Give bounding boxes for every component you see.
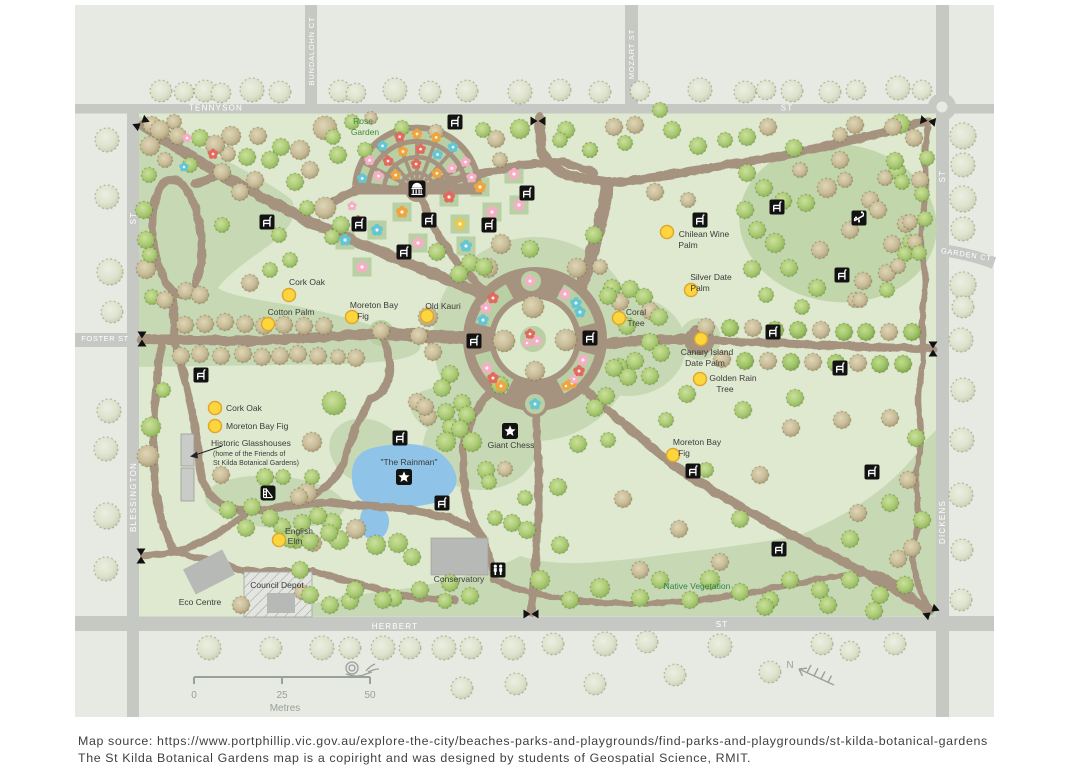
svg-text:Metres: Metres: [270, 703, 301, 714]
svg-text:Golden Rain: Golden Rain: [709, 373, 757, 383]
svg-text:(home of the Friends of: (home of the Friends of: [213, 451, 285, 458]
svg-text:Garden: Garden: [351, 127, 380, 137]
svg-text:N: N: [786, 660, 793, 671]
svg-text:Palm: Palm: [690, 283, 709, 293]
svg-text:Historic Glasshouses: Historic Glasshouses: [211, 438, 291, 448]
svg-text:ST: ST: [781, 104, 794, 113]
svg-text:ST: ST: [938, 170, 947, 183]
svg-text:Map source: https://www.portph: Map source: https://www.portphillip.vic.…: [78, 734, 988, 748]
svg-text:Council Depot: Council Depot: [250, 580, 304, 590]
svg-text:HERBERT: HERBERT: [372, 622, 418, 631]
svg-text:Giant Chess: Giant Chess: [488, 440, 535, 450]
svg-text:TENNYSON: TENNYSON: [189, 104, 243, 113]
svg-text:Silver Date: Silver Date: [690, 272, 732, 282]
svg-text:Eco Centre: Eco Centre: [179, 597, 222, 607]
svg-text:DICKENS: DICKENS: [938, 500, 947, 544]
svg-text:MOZART ST: MOZART ST: [627, 29, 636, 79]
svg-text:BUNDALOHN CT: BUNDALOHN CT: [307, 17, 316, 86]
svg-text:25: 25: [276, 690, 288, 701]
svg-text:St Kilda Botanical Gardens): St Kilda Botanical Gardens): [213, 460, 299, 467]
svg-text:0: 0: [191, 690, 197, 701]
svg-text:Moreton Bay: Moreton Bay: [350, 300, 399, 310]
svg-text:"The Rainman": "The Rainman": [380, 457, 437, 467]
svg-text:Conservatory: Conservatory: [434, 574, 485, 584]
svg-text:Tree: Tree: [716, 384, 733, 394]
svg-text:Coral: Coral: [626, 307, 646, 317]
svg-text:The St Kilda Botanical Gardens: The St Kilda Botanical Gardens map is a …: [78, 751, 751, 765]
svg-text:Canary Island: Canary Island: [681, 347, 734, 357]
svg-text:Moreton Bay Fig: Moreton Bay Fig: [226, 421, 289, 431]
svg-text:Fig: Fig: [357, 311, 369, 321]
svg-text:Date Palm: Date Palm: [685, 358, 725, 368]
svg-text:FOSTER ST: FOSTER ST: [81, 334, 129, 343]
svg-text:Old Kauri: Old Kauri: [425, 301, 461, 311]
svg-text:Elm: Elm: [288, 536, 303, 546]
svg-text:Cork Oak: Cork Oak: [289, 277, 326, 287]
svg-text:Palm: Palm: [678, 240, 697, 250]
svg-text:Fig: Fig: [678, 448, 690, 458]
svg-text:Moreton Bay: Moreton Bay: [673, 437, 722, 447]
svg-text:BLESSINGTON: BLESSINGTON: [129, 462, 138, 532]
svg-text:ST: ST: [716, 620, 729, 629]
svg-text:50: 50: [364, 690, 376, 701]
svg-text:Tree: Tree: [627, 318, 644, 328]
svg-text:Cork Oak: Cork Oak: [226, 403, 263, 413]
svg-text:Cotton Palm: Cotton Palm: [268, 307, 315, 317]
svg-text:Native Vegetation: Native Vegetation: [664, 581, 731, 591]
svg-text:Rose: Rose: [353, 116, 373, 126]
svg-text:Chilean Wine: Chilean Wine: [679, 229, 730, 239]
svg-text:English: English: [285, 526, 313, 536]
svg-text:ST: ST: [129, 212, 138, 225]
